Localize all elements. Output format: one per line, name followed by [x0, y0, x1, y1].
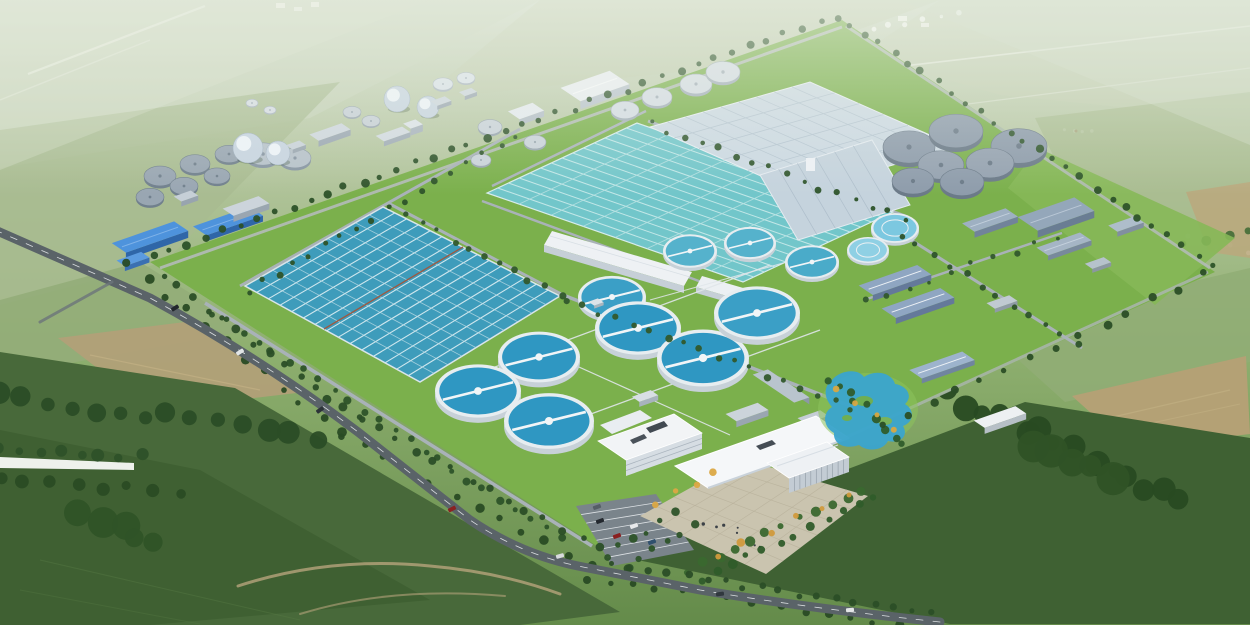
clarifier: [785, 245, 839, 282]
open-blue-tank: [847, 237, 889, 266]
aerial-rendering: [0, 0, 1250, 625]
scene-root: [0, 0, 1250, 625]
scene-svg: [0, 0, 1250, 625]
clarifier: [663, 234, 717, 271]
car-on-highway: [846, 608, 854, 613]
clarifier: [504, 393, 594, 454]
clarifier: [714, 286, 800, 344]
pond-island: [842, 415, 852, 421]
clarifier: [724, 227, 776, 262]
